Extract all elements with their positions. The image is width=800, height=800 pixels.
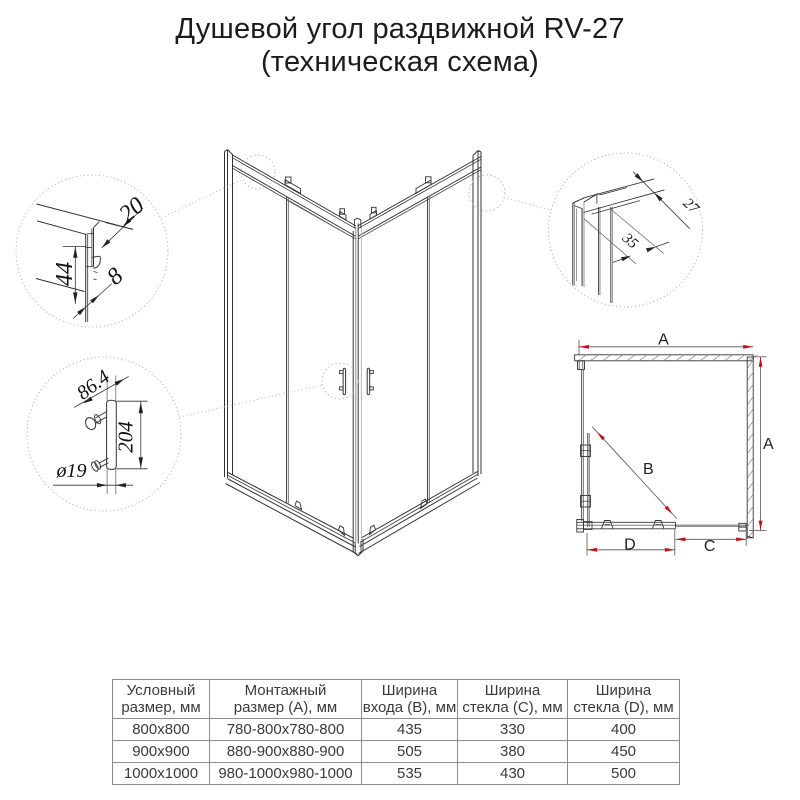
svg-text:C: C [704,538,716,555]
svg-text:44: 44 [52,262,78,286]
svg-text:86.4: 86.4 [73,366,114,405]
svg-text:27: 27 [680,195,703,218]
svg-text:ø19: ø19 [56,460,87,482]
svg-text:B: B [643,461,654,478]
svg-text:8: 8 [102,263,128,290]
svg-text:204: 204 [113,421,137,453]
svg-text:D: D [624,536,636,553]
svg-text:A: A [763,436,774,453]
svg-text:20: 20 [114,192,149,227]
svg-text:35: 35 [618,230,641,253]
svg-text:A: A [658,332,669,349]
